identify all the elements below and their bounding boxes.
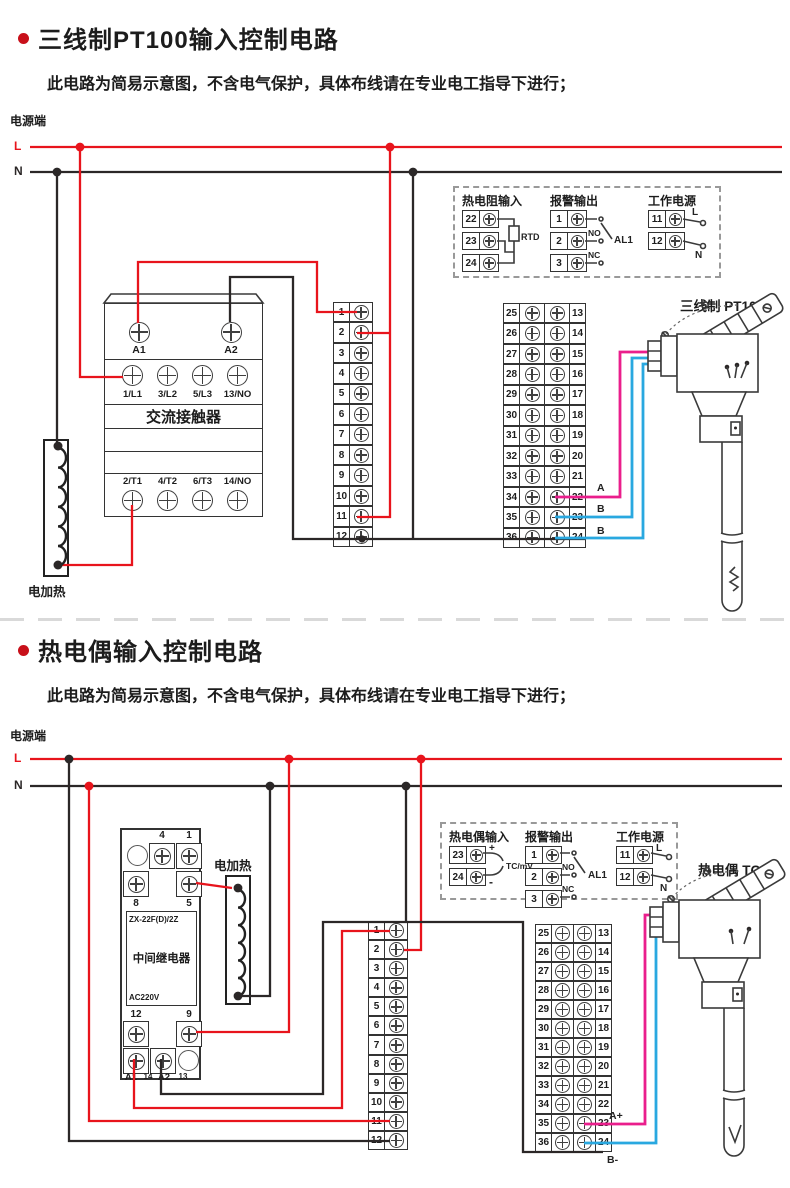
relay-screw — [128, 876, 145, 893]
terminal-number: 10 — [369, 1094, 385, 1111]
latch-dot — [736, 993, 739, 996]
alarm-output-title: 报警输出 — [550, 192, 598, 206]
terminal-screw-cell — [552, 1020, 574, 1037]
terminal-number-right: 19 — [570, 427, 585, 445]
section2-title: 热电偶输入控制电路 — [38, 632, 263, 667]
terminal-screw-cell — [545, 386, 570, 404]
tc-input-title: 热电偶输入 — [449, 828, 509, 842]
io-terminal-row: 12 — [648, 232, 696, 250]
contactor-screw — [122, 490, 143, 511]
terminal-screw — [525, 530, 540, 545]
terminal-screw-cell — [520, 447, 545, 465]
io-panel-pt100: 热电阻输入 222324 报警输出 123 工作电源 1112 — [453, 186, 721, 278]
terminal-number: 3 — [369, 960, 385, 977]
terminal-screw — [550, 367, 565, 382]
tc-input-group: 热电偶输入 2324 — [449, 828, 509, 886]
io-terminal-screw-cell — [634, 846, 653, 864]
terminal-number-right: 15 — [596, 963, 611, 980]
relay-screw — [181, 1026, 198, 1043]
relay-terminal-cell — [123, 1021, 149, 1047]
terminal-screw — [550, 408, 565, 423]
terminal-screw — [577, 926, 592, 941]
relay-base-label: 13 — [176, 1072, 190, 1081]
tc-sensor-label: 热电偶 TC — [698, 859, 760, 879]
relay-body: ZX-22F(D)/2Z 中间继电器 AC220V — [126, 911, 197, 1006]
terminal-screw — [354, 407, 369, 422]
line-l-label-1: L — [14, 139, 21, 153]
relay-terminal-label: 1 — [179, 830, 199, 841]
io-terminal-screw-cell — [467, 846, 486, 864]
relay-screw — [128, 1053, 145, 1070]
terminal-number: 12 — [334, 528, 350, 546]
terminal-number-right: 20 — [596, 1058, 611, 1075]
contactor-terminal-label: 14/NO — [224, 476, 251, 487]
io-terminal-screw-cell — [568, 254, 587, 272]
terminal-number: 11 — [334, 507, 350, 525]
terminal-screw — [550, 326, 565, 341]
terminal-number-right: 17 — [570, 386, 585, 404]
terminal-row: 27 15 — [503, 344, 586, 364]
terminal-screw-cell — [350, 385, 372, 403]
sensor-head — [679, 900, 760, 958]
io-terminal-row: 23 — [449, 846, 509, 864]
sensor-lid-screw-icon — [662, 332, 668, 338]
io-terminal-screw — [637, 871, 650, 884]
sensor-gland-threads — [648, 351, 661, 361]
terminal-screw-cell — [574, 1058, 596, 1075]
contactor-terminal-label: 5/L3 — [193, 389, 212, 400]
screw-slot — [765, 870, 773, 878]
io-terminal-number: 3 — [550, 254, 568, 272]
terminal-row: 31 19 — [503, 426, 586, 446]
terminal-screw — [525, 449, 540, 464]
terminal-block-1-12-bottom: 1 2 3 4 5 6 7 8 9 10 — [368, 921, 408, 1150]
junction-dot — [417, 755, 426, 764]
terminal-screw — [354, 468, 369, 483]
io-terminal-row: 11 — [648, 210, 696, 228]
contactor-divider — [105, 404, 262, 405]
terminal-screw — [354, 386, 369, 401]
relay-screw — [181, 876, 198, 893]
terminal-number: 8 — [334, 446, 350, 464]
terminal-row: 11 — [333, 506, 373, 526]
terminal-number: 4 — [369, 979, 385, 996]
io-terminal-screw-cell — [568, 232, 587, 250]
terminal-number-left: 26 — [504, 324, 520, 342]
terminal-screw-cell — [520, 365, 545, 383]
terminal-screw-cell — [350, 466, 372, 484]
io-terminal-row: 1 — [550, 210, 598, 228]
contactor-divider — [105, 359, 262, 360]
io-terminal-row: 3 — [550, 254, 598, 272]
terminal-row: 36 24 — [503, 528, 586, 548]
terminal-screw — [555, 964, 570, 979]
terminal-row: 29 17 — [503, 385, 586, 405]
terminal-screw-cell — [385, 941, 407, 958]
terminal-screw-cell — [520, 304, 545, 322]
terminal-screw — [389, 1038, 404, 1053]
rtd-input-group: 热电阻输入 222324 — [462, 192, 522, 272]
terminal-screw-cell — [545, 447, 570, 465]
io-terminal-number: 12 — [616, 868, 634, 886]
line-n-label-1: N — [14, 164, 23, 178]
wire-label-b1: B — [597, 503, 605, 515]
relay-base-label: A2 — [155, 1072, 173, 1083]
relay-terminal-cell — [150, 1048, 176, 1074]
contactor-screw — [227, 365, 248, 386]
terminal-row: 3 — [333, 343, 373, 363]
io-terminal-number: 11 — [616, 846, 634, 864]
terminal-row: 6 — [368, 1016, 408, 1035]
manual-page: 三线制PT100输入控制电路 此电路为简易示意图，不含电气保护，具体布线请在专业… — [0, 0, 790, 1188]
relay-terminal-label: 5 — [179, 898, 199, 909]
terminal-number-right: 18 — [570, 406, 585, 424]
terminal-number: 4 — [334, 364, 350, 382]
relay-screw — [155, 1053, 172, 1070]
terminal-screw — [389, 1114, 404, 1129]
terminal-number-right: 18 — [596, 1020, 611, 1037]
terminal-number-right: 16 — [570, 365, 585, 383]
terminal-number-left: 33 — [504, 467, 520, 485]
terminal-screw — [525, 347, 540, 362]
terminal-row: 33 21 — [535, 1076, 612, 1095]
contactor-output-row: 2/T14/T26/T314/NO — [115, 476, 255, 511]
terminal-screw — [525, 428, 540, 443]
terminal-screw-cell — [520, 406, 545, 424]
terminal-screw-cell — [552, 1134, 574, 1151]
terminal-screw — [354, 346, 369, 361]
terminal-screw — [555, 1021, 570, 1036]
terminal-number: 9 — [334, 466, 350, 484]
terminal-number-right: 24 — [596, 1134, 611, 1151]
terminal-number: 7 — [334, 426, 350, 444]
terminal-screw — [389, 1057, 404, 1072]
contactor-terminal-label: 13/NO — [224, 389, 251, 400]
terminal-screw — [555, 1078, 570, 1093]
io-terminal-screw — [470, 871, 483, 884]
io-terminal-screw — [637, 849, 650, 862]
terminal-screw-cell — [520, 488, 545, 506]
terminal-screw-cell — [574, 1039, 596, 1056]
terminal-screw — [389, 980, 404, 995]
io-terminal-row: 2 — [550, 232, 598, 250]
terminal-screw — [389, 1076, 404, 1091]
relay-terminal-cell — [176, 843, 202, 869]
relay-terminal-cell — [123, 1048, 149, 1074]
terminal-row: 26 14 — [535, 943, 612, 962]
terminal-row: 30 18 — [503, 405, 586, 425]
terminal-number-left: 30 — [536, 1020, 552, 1037]
terminal-screw — [389, 923, 404, 938]
terminal-row: 34 22 — [535, 1095, 612, 1114]
terminal-number-right: 19 — [596, 1039, 611, 1056]
io-terminal-row: 22 — [462, 210, 522, 228]
terminal-screw — [354, 427, 369, 442]
terminal-number-left: 31 — [504, 427, 520, 445]
relay-terminal-label: 12 — [126, 1009, 146, 1020]
io-terminal-number: 24 — [449, 868, 467, 886]
terminal-screw-cell — [552, 982, 574, 999]
terminal-screw-cell — [545, 304, 570, 322]
terminal-number: 3 — [334, 344, 350, 362]
io-terminal-screw — [669, 235, 682, 248]
terminal-screw-cell — [350, 528, 372, 546]
terminal-screw-cell — [385, 998, 407, 1015]
terminal-row: 32 20 — [503, 446, 586, 466]
sensor-collar-latch — [733, 988, 742, 1001]
io-terminal-number: 12 — [648, 232, 666, 250]
ac-contactor: A1 A2 1/L13/L25/L313/NO 交流接触器 2/T14/T26/… — [104, 303, 263, 517]
relay-mid-labels: 85 — [122, 898, 199, 909]
terminal-screw — [550, 469, 565, 484]
io-terminal-number: 2 — [525, 868, 543, 886]
terminal-screw-cell — [350, 405, 372, 423]
terminal-screw — [525, 387, 540, 402]
terminal-screw — [555, 1002, 570, 1017]
contactor-divider — [105, 428, 262, 429]
section1-subtitle: 此电路为简易示意图，不含电气保护，具体布线请在专业电工指导下进行； — [47, 70, 575, 94]
section-divider — [0, 618, 790, 621]
terminal-row: 1 — [368, 921, 408, 940]
terminal-number-right: 24 — [570, 529, 585, 547]
terminal-screw — [577, 964, 592, 979]
sensor-tip — [722, 600, 742, 611]
terminal-row: 30 18 — [535, 1019, 612, 1038]
terminal-screw-cell — [545, 324, 570, 342]
wire-label-b2: B — [597, 525, 605, 537]
terminal-number-right: 20 — [570, 447, 585, 465]
terminal-number-left: 25 — [536, 925, 552, 942]
terminal-screw — [354, 509, 369, 524]
terminal-screw-cell — [552, 1001, 574, 1018]
terminal-row: 12 — [368, 1131, 408, 1150]
relay-terminal-cell — [149, 843, 175, 869]
io-panel-tc: 热电偶输入 2324 报警输出 123 工作电源 1112 — [440, 822, 678, 900]
io-terminal-screw — [483, 235, 496, 248]
io-terminal-screw-cell — [480, 210, 499, 228]
terminal-screw — [577, 1002, 592, 1017]
screw-slot — [763, 304, 771, 312]
io-terminal-screw-cell — [666, 210, 685, 228]
io-terminal-number: 23 — [462, 232, 480, 250]
terminal-screw — [555, 983, 570, 998]
relay-top-labels: 41 — [122, 830, 199, 841]
sensor-head — [677, 334, 758, 392]
terminal-row: 31 19 — [535, 1038, 612, 1057]
terminal-number-right: 21 — [596, 1077, 611, 1094]
terminal-screw — [354, 305, 369, 320]
terminal-number: 11 — [369, 1113, 385, 1130]
io-terminal-screw — [483, 257, 496, 270]
alarm-output-group: 报警输出 123 — [550, 192, 598, 272]
terminal-screw — [389, 961, 404, 976]
terminal-screw — [577, 983, 592, 998]
intermediate-relay: 41 85 ZX-22F(D)/2Z 中间继电器 AC220V 129 A114… — [120, 828, 201, 1080]
terminal-row: 25 13 — [535, 924, 612, 943]
contactor-screw — [227, 490, 248, 511]
terminal-screw — [550, 510, 565, 525]
terminal-screw-cell — [574, 982, 596, 999]
contactor-terminal: 2/T1 — [115, 476, 150, 511]
io-terminal-screw — [669, 213, 682, 226]
junction-dot — [409, 168, 418, 177]
terminal-number-right: 13 — [596, 925, 611, 942]
io-terminal-screw — [546, 871, 559, 884]
io-terminal-screw — [483, 213, 496, 226]
terminal-screw — [550, 387, 565, 402]
terminal-number-left: 28 — [536, 982, 552, 999]
relay-screw — [154, 848, 171, 865]
io-terminal-screw — [470, 849, 483, 862]
terminal-screw — [577, 1021, 592, 1036]
screw-slot — [662, 332, 668, 338]
terminal-row: 6 — [333, 404, 373, 424]
terminal-screw-cell — [350, 303, 372, 321]
contactor-terminal: 4/T2 — [150, 476, 185, 511]
terminal-screw — [525, 306, 540, 321]
terminal-screw — [525, 490, 540, 505]
terminal-number-left: 35 — [536, 1115, 552, 1132]
io-terminal-row: 3 — [525, 890, 573, 908]
work-power-group: 工作电源 1112 — [648, 192, 696, 250]
work-power-title: 工作电源 — [648, 192, 696, 206]
terminal-screw — [525, 326, 540, 341]
contactor-terminal: 6/T3 — [185, 476, 220, 511]
terminal-number-right: 22 — [570, 488, 585, 506]
contactor-terminal-label: 2/T1 — [123, 476, 142, 487]
io-terminal-screw — [546, 849, 559, 862]
contactor-screw — [157, 490, 178, 511]
contactor-screw-a1 — [129, 322, 150, 343]
terminal-screw-cell — [520, 427, 545, 445]
terminal-row: 5 — [368, 997, 408, 1016]
sensor-gland-collar — [663, 902, 679, 942]
junction-dot — [402, 782, 411, 791]
relay-name: 中间继电器 — [127, 950, 196, 966]
terminal-screw-cell — [574, 1134, 596, 1151]
contactor-terminal: 5/L3 — [185, 365, 220, 400]
terminal-row: 28 16 — [503, 364, 586, 384]
contactor-terminal: 3/L2 — [150, 365, 185, 400]
terminal-number-left: 36 — [504, 529, 520, 547]
sensor-terminal — [747, 927, 752, 932]
rtd-input-title: 热电阻输入 — [462, 192, 522, 206]
terminal-number: 12 — [369, 1132, 385, 1149]
junction-dot — [266, 782, 275, 791]
terminal-screw-cell — [520, 508, 545, 526]
terminal-screw-cell — [350, 507, 372, 525]
contactor-terminal-label: 4/T2 — [158, 476, 177, 487]
io-terminal-number: 2 — [550, 232, 568, 250]
io-terminal-screw — [571, 213, 584, 226]
sensor-neck — [694, 958, 748, 982]
terminal-number-right: 17 — [596, 1001, 611, 1018]
terminal-screw-cell — [545, 508, 570, 526]
terminal-row: 25 13 — [503, 303, 586, 323]
terminal-number: 1 — [369, 922, 385, 939]
contactor-divider — [105, 451, 262, 452]
terminal-screw-cell — [520, 529, 545, 547]
terminal-row: 8 — [368, 1055, 408, 1074]
terminal-screw — [354, 366, 369, 381]
terminal-screw — [550, 347, 565, 362]
terminal-screw — [555, 945, 570, 960]
terminal-number: 9 — [369, 1075, 385, 1092]
sensor-gland — [650, 907, 663, 937]
terminal-screw-cell — [385, 960, 407, 977]
work-power-group-2: 工作电源 1112 — [616, 828, 664, 886]
terminal-number-left: 30 — [504, 406, 520, 424]
terminal-screw-cell — [385, 1036, 407, 1053]
io-terminal-screw-cell — [543, 868, 562, 886]
relay-screw — [128, 1026, 145, 1043]
terminal-screw — [550, 306, 565, 321]
terminal-number-right: 23 — [596, 1115, 611, 1132]
terminal-row: 9 — [368, 1074, 408, 1093]
io-terminal-screw-cell — [666, 232, 685, 250]
io-terminal-row: 24 — [462, 254, 522, 272]
line-l-label-2: L — [14, 751, 21, 765]
terminal-number-right: 15 — [570, 345, 585, 363]
terminal-screw — [550, 530, 565, 545]
section1-title: 三线制PT100输入控制电路 — [38, 20, 339, 55]
relay-voltage: AC220V — [129, 993, 159, 1002]
relay-terminal-label: 4 — [152, 830, 172, 841]
contactor-terminal: 14/NO — [220, 476, 255, 511]
relay-terminal-label: 8 — [126, 898, 146, 909]
terminal-screw — [389, 1018, 404, 1033]
terminal-screw-cell — [545, 488, 570, 506]
relay-terminal-cell — [176, 871, 202, 897]
contactor-terminal-label: 6/T3 — [193, 476, 212, 487]
terminal-row: 35 23 — [535, 1114, 612, 1133]
terminal-screw-cell — [385, 1075, 407, 1092]
terminal-screw-cell — [350, 446, 372, 464]
io-terminal-screw-cell — [634, 868, 653, 886]
relay-base-label: A1 — [122, 1072, 140, 1083]
contactor-terminal-label: 1/L1 — [123, 389, 142, 400]
power-terminal-label-1: 电源端 — [10, 112, 46, 129]
terminal-block-dual-top: 25 13 26 14 27 15 28 16 29 17 30 — [503, 303, 586, 548]
terminal-screw — [389, 999, 404, 1014]
sensor-stem-break — [723, 1090, 745, 1100]
terminal-screw-cell — [350, 426, 372, 444]
terminal-screw — [577, 1116, 592, 1131]
io-terminal-screw-cell — [543, 846, 562, 864]
terminal-row: 33 21 — [503, 466, 586, 486]
terminal-screw-cell — [520, 386, 545, 404]
terminal-row: 1 — [333, 302, 373, 322]
heater-element-2 — [225, 875, 251, 1005]
terminal-number-left: 28 — [504, 365, 520, 383]
terminal-row: 36 24 — [535, 1133, 612, 1152]
junction-dot — [65, 755, 74, 764]
sensor-element-squiggle — [730, 567, 738, 591]
terminal-number: 2 — [334, 323, 350, 341]
heater-label-1: 电加热 — [28, 581, 66, 600]
io-terminal-number: 24 — [462, 254, 480, 272]
sensor-gland-collar — [661, 336, 677, 376]
terminal-screw-cell — [545, 365, 570, 383]
latch-dot — [734, 427, 737, 430]
terminal-screw — [550, 490, 565, 505]
io-terminal-screw — [571, 235, 584, 248]
sensor-neck — [692, 392, 746, 416]
terminal-screw-cell — [385, 979, 407, 996]
terminal-number-left: 36 — [536, 1134, 552, 1151]
terminal-screw-cell — [385, 1113, 407, 1130]
io-terminal-row: 11 — [616, 846, 664, 864]
